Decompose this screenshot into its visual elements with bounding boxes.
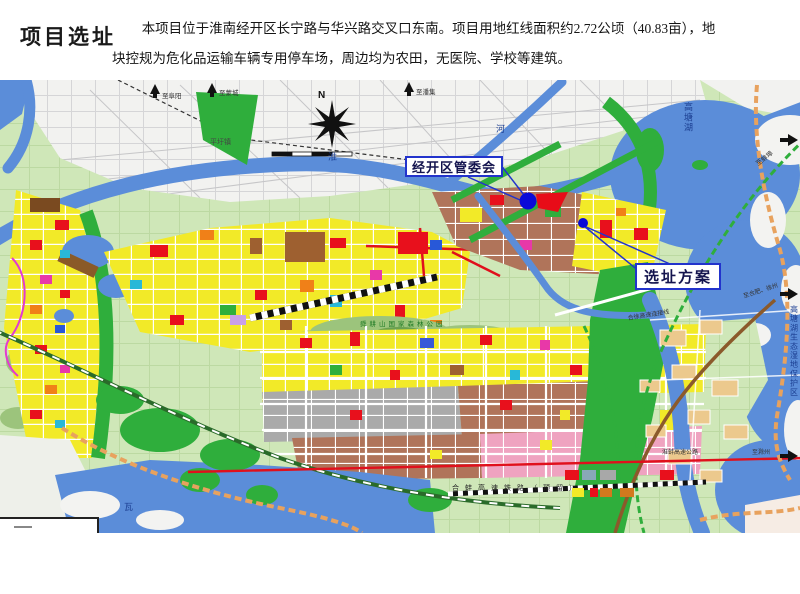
label-huai: 淮 (328, 152, 337, 162)
site-marker (578, 218, 588, 228)
callout-committee: 经开区管委会 (405, 156, 503, 177)
label-to-fuyang: 至阜阳 (162, 91, 182, 100)
label-wabu: 瓦 (124, 502, 133, 512)
callout-site: 选址方案 (635, 263, 721, 290)
label-gaotang-lake: 高塘湖 (684, 101, 693, 133)
body-line-2: 块控规为危化品运输车辆专用停车场，周边均为农田，无医院、学校等建筑。 (112, 44, 790, 74)
scale-bar (272, 152, 352, 156)
label-pingwei: 平圩镇 (210, 137, 231, 146)
body-line-1: 本项目位于淮南经开区长宁路与华兴路交叉口东南。项目用地红线面积约2.72公顷（4… (112, 14, 790, 44)
label-eco-zone: 高塘湖生态湿地保护区 (790, 304, 798, 397)
label-huaibeng-expwy: 淮蚌高速公路 (662, 448, 698, 456)
compass-n-label: N (318, 90, 325, 101)
label-hsr-reserved: 合蚌高速铁路（预留） (452, 483, 582, 492)
legend-box (0, 518, 98, 533)
label-to-mengcheng: 至蒙城 (219, 88, 239, 97)
label-to-panji: 至潘集 (416, 87, 436, 96)
planning-map: N 至阜阳 至蒙城 至潘集 平圩镇 淮 (0, 80, 800, 533)
slide: 项目选址 本项目位于淮南经开区长宁路与华兴路交叉口东南。项目用地红线面积约2.7… (0, 0, 800, 594)
planning-map-image: N 至阜阳 至蒙城 至潘集 平圩镇 淮 (0, 80, 800, 533)
page-title: 项目选址 (20, 21, 116, 51)
body-text: 本项目位于淮南经开区长宁路与华兴路交叉口东南。项目用地红线面积约2.72公顷（4… (112, 14, 790, 74)
committee-marker (520, 193, 537, 210)
label-he: 河 (496, 123, 505, 134)
label-shungeng: 舜耕山国家森林公园 (360, 319, 446, 328)
label-to-chuzhou: 至滁州 (752, 448, 770, 456)
